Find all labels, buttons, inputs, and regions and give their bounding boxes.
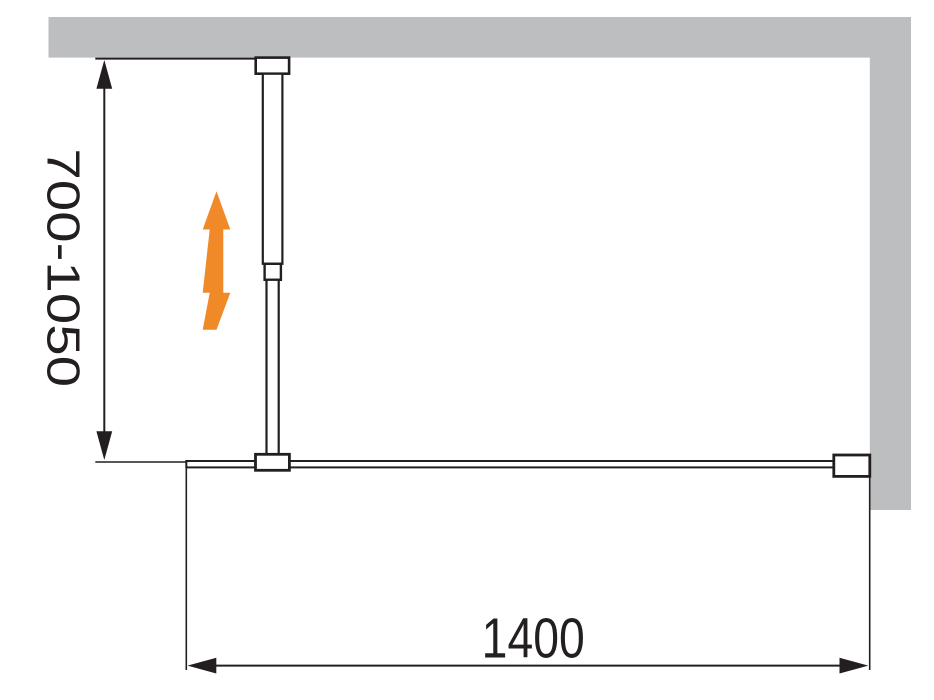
- svg-text:1400: 1400: [482, 606, 585, 669]
- svg-text:700-1050: 700-1050: [38, 148, 90, 387]
